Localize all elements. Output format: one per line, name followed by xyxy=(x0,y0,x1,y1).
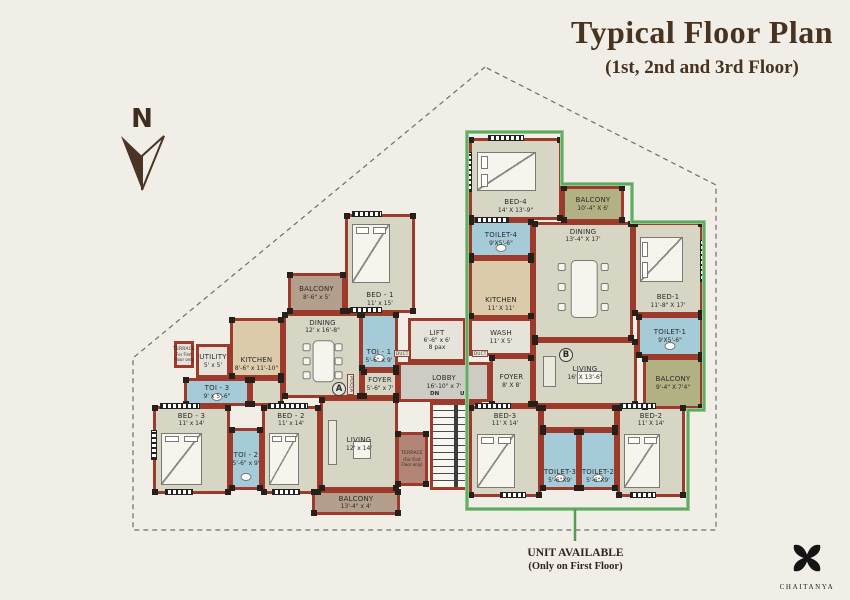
wall-pillar xyxy=(612,429,618,435)
north-letter: N xyxy=(110,106,174,132)
wall-pillar xyxy=(528,257,534,263)
wall-pillar xyxy=(468,313,474,319)
room-label-toilet-3-b: TOILET-35'-6"X9' xyxy=(544,468,576,484)
room-label-balcony-right-b: BALCONY9'-4" X 7'4" xyxy=(656,375,691,391)
wall-pillar xyxy=(528,313,534,319)
room-label-kitchen-a: KITCHEN8'-6" x 11'-10" xyxy=(235,356,278,372)
wall-pillar xyxy=(257,427,263,433)
room-kitchen-a: KITCHEN8'-6" x 11'-10" xyxy=(230,318,283,378)
wall-pillar xyxy=(468,405,474,411)
bed-icon xyxy=(161,433,202,485)
room-dining-b: DINING13'-4" X 17' xyxy=(533,222,633,340)
wall-pillar xyxy=(561,217,567,223)
wall-pillar xyxy=(680,405,686,411)
room-living-a: LIVING12' x 14' xyxy=(320,398,398,490)
toilet-fixture-icon xyxy=(241,473,252,481)
wall-pillar xyxy=(393,397,399,403)
stairs-up-label: UP xyxy=(460,391,469,397)
room-label-bed-3-a: BED - 311' x 14' xyxy=(178,412,205,428)
room-bed-1-b: BED-111'-8" X 17' xyxy=(633,222,703,315)
window-icon xyxy=(475,403,511,409)
window-icon xyxy=(350,307,382,313)
wall-pillar xyxy=(311,510,317,516)
room-label-wash-b: WASH11' X 5' xyxy=(490,329,513,345)
pooja-label: POOJA xyxy=(347,374,354,395)
page-subtitle: (1st, 2nd and 3rd Floor) xyxy=(560,57,844,79)
room-label-living-b: LIVING16' X 13'-6" xyxy=(567,365,602,381)
wall-pillar xyxy=(540,485,546,491)
wall-pillar xyxy=(468,492,474,498)
wall-pillar xyxy=(282,393,288,399)
window-icon xyxy=(620,403,656,409)
wall-pillar xyxy=(468,137,474,143)
chaitanya-flower-logo-icon xyxy=(787,538,827,578)
window-icon xyxy=(475,217,509,223)
unit-a-marker: A xyxy=(332,382,346,396)
wall-pillar xyxy=(528,401,534,407)
north-indicator: N xyxy=(110,106,174,198)
room-bed-3-b: BED-311' X 14' xyxy=(469,406,541,497)
wall-pillar xyxy=(632,221,638,227)
room-toilet-2-b: TOILET-25'-6"X9' xyxy=(579,430,617,490)
room-label-dining-a: DINING12' x 16'-8" xyxy=(305,319,340,335)
wall-pillar xyxy=(229,485,235,491)
wall-pillar xyxy=(261,405,267,411)
north-arrow-icon xyxy=(114,132,170,194)
wall-pillar xyxy=(532,339,538,345)
wall-pillar xyxy=(361,393,367,399)
room-balcony-top-b: BALCONY10'-4" X 6' xyxy=(562,186,624,222)
room-label-living-a: LIVING12' x 14' xyxy=(346,436,372,452)
wall-pillar xyxy=(468,219,474,225)
room-label-bed-1-b: BED-111'-8" X 17' xyxy=(650,293,685,309)
wall-pillar xyxy=(642,356,648,362)
room-lobby: LOBBY16'-10" x 7' xyxy=(398,362,490,402)
bed-icon xyxy=(352,224,389,284)
wall-pillar xyxy=(489,355,495,361)
wall-pillar xyxy=(261,489,267,495)
wall-pillar xyxy=(410,308,416,314)
wall-pillar xyxy=(395,431,401,437)
room-label-balcony-top-a: BALCONY8'-6" x 5' xyxy=(299,285,334,301)
wall-pillar xyxy=(698,356,704,362)
room-kitchen-b: KITCHEN11' X 11' xyxy=(469,258,533,318)
wall-pillar xyxy=(287,272,293,278)
window-icon xyxy=(700,240,706,282)
wall-pillar xyxy=(311,489,317,495)
wall-pillar xyxy=(616,492,622,498)
wall-pillar xyxy=(395,489,401,495)
sofa-icon xyxy=(543,356,556,387)
room-label-utility-a: UTILITY5' x 5' xyxy=(199,353,226,369)
wall-pillar xyxy=(619,185,625,191)
wall-pillar xyxy=(344,213,350,219)
room-label-balcony-top-b: BALCONY10'-4" X 6' xyxy=(576,196,611,212)
window-icon xyxy=(488,135,524,141)
room-label-lift: LIFT6'-6" x 6'8 pax xyxy=(423,329,450,352)
wall-pillar xyxy=(468,257,474,263)
legend-line-2: (Only on First Floor) xyxy=(488,561,663,572)
window-icon xyxy=(630,492,656,498)
wall-pillar xyxy=(229,373,235,379)
room-label-foyer-b: FOYER8' X 8' xyxy=(500,373,524,389)
room-label-toilet-1-b: TOILET-19'X5'-6" xyxy=(654,328,686,344)
wall-pillar xyxy=(578,429,584,435)
dining-table-icon xyxy=(302,340,343,380)
wall-pillar xyxy=(557,137,563,143)
bed-icon xyxy=(477,434,515,488)
wall-pillar xyxy=(636,314,642,320)
bed-icon xyxy=(624,434,660,488)
dining-table-icon xyxy=(557,260,610,316)
room-label-toi-2-a: TOI - 25'-6" x 9' xyxy=(232,451,259,467)
wall-pillar xyxy=(340,308,346,314)
wall-pillar xyxy=(680,492,686,498)
page-title: Typical Floor Plan xyxy=(560,16,844,50)
brand-block: CHAITANYA xyxy=(773,538,841,591)
room-label-bed-1-a: BED - 111' x 15' xyxy=(366,291,393,307)
room-terrace-small-a: TERRACEFor First Floor only xyxy=(174,341,194,368)
room-label-foyer-a: FOYER5'-6" x 7' xyxy=(366,376,393,392)
room-lift: LIFT6'-6" x 6'8 pax xyxy=(408,318,466,362)
wall-pillar xyxy=(578,485,584,491)
stairs-dn-label: DN xyxy=(430,391,439,397)
wall-pillar xyxy=(536,492,542,498)
room-bed-3-a: BED - 311' x 14' xyxy=(153,406,230,494)
room-foyer-b: FOYER8' X 8' xyxy=(490,356,533,406)
room-toilet-1-b: TOILET-19'X5'-6" xyxy=(637,315,703,357)
wall-pillar xyxy=(423,431,429,437)
room-toi-2-a: TOI - 25'-6" x 9' xyxy=(230,428,262,490)
wall-pillar xyxy=(612,485,618,491)
wall-pillar xyxy=(152,405,158,411)
duct-right-label: DUCT xyxy=(472,350,488,357)
room-label-toilet-4-b: TOILET-49'X5'-6" xyxy=(485,231,517,247)
wall-pillar xyxy=(540,405,546,411)
room-label-bed-3-b: BED-311' X 14' xyxy=(492,412,519,428)
room-toilet-4-b: TOILET-49'X5'-6" xyxy=(469,220,533,258)
wall-pillar xyxy=(393,312,399,318)
wall-pillar xyxy=(319,397,325,403)
wall-pillar xyxy=(393,369,399,375)
room-toilet-3-b: TOILET-35'-6"X9' xyxy=(541,430,579,490)
wall-pillar xyxy=(698,314,704,320)
unit-b-marker: B xyxy=(559,348,573,362)
bed-icon xyxy=(640,237,684,282)
wall-pillar xyxy=(619,217,625,223)
wall-pillar xyxy=(225,405,231,411)
wall-pillar xyxy=(540,429,546,435)
window-icon xyxy=(466,152,472,192)
wall-pillar xyxy=(152,489,158,495)
room-label-dining-b: DINING13'-4" X 17' xyxy=(565,228,600,244)
room-bed-2-b: BED-211' X 14' xyxy=(617,406,685,497)
room-label-toi-3-a: TOI - 39' x 5'-6" xyxy=(203,384,230,400)
wall-pillar xyxy=(340,272,346,278)
room-passage-b xyxy=(541,406,617,430)
wall-pillar xyxy=(423,481,429,487)
brand-name: CHAITANYA xyxy=(773,583,841,591)
wall-pillar xyxy=(249,401,255,407)
window-icon xyxy=(272,489,300,495)
room-label-lobby: LOBBY16'-10" x 7' xyxy=(427,374,462,390)
room-label-balcony-bottom-a: BALCONY13'-4" x 4' xyxy=(339,495,374,511)
room-bed-1-a: BED - 111' x 15' xyxy=(345,214,415,313)
wall-pillar xyxy=(229,427,235,433)
wall-pillar xyxy=(532,221,538,227)
room-label-bed-2-a: BED - 211' x 14' xyxy=(277,412,304,428)
room-label-terrace-a: TERRACE(For First Floor only) xyxy=(399,451,425,466)
room-terrace-a: TERRACE(For First Floor only) xyxy=(396,432,428,486)
room-balcony-bottom-a: BALCONY13'-4" x 4' xyxy=(312,490,400,515)
room-balcony-top-a: BALCONY8'-6" x 5' xyxy=(288,273,345,313)
sofa-icon xyxy=(328,420,337,465)
duct-left-label: DUCT xyxy=(394,350,410,357)
room-label-toilet-2-b: TOILET-25'-6"X9' xyxy=(582,468,614,484)
room-toi-1-a: TOI - 15'-6" x 9' xyxy=(360,313,398,370)
bed-icon xyxy=(269,433,299,485)
wall-pillar xyxy=(698,221,704,227)
window-icon xyxy=(500,492,526,498)
wall-pillar xyxy=(319,485,325,491)
wall-pillar xyxy=(395,481,401,487)
wall-pillar xyxy=(410,213,416,219)
room-bed-4-b: BED-414' X 13'-9" xyxy=(469,138,562,220)
legend-line-1: UNIT AVAILABLE xyxy=(488,547,663,559)
wall-pillar xyxy=(315,405,321,411)
bed-icon xyxy=(477,152,536,192)
wall-pillar xyxy=(278,317,284,323)
room-bed-2-a: BED - 211' x 14' xyxy=(262,406,320,494)
floor-plan: BED - 111' x 15'BALCONY8'-6" x 5'DINING1… xyxy=(0,0,850,600)
wall-pillar xyxy=(632,339,638,345)
window-icon xyxy=(160,403,200,409)
room-balcony-right-b: BALCONY9'-4" X 7'4" xyxy=(643,357,703,409)
floor-plan-page: BED - 111' x 15'BALCONY8'-6" x 5'DINING1… xyxy=(0,0,850,600)
wall-pillar xyxy=(528,355,534,361)
room-label-kitchen-b: KITCHEN11' X 11' xyxy=(485,296,517,312)
wall-pillar xyxy=(229,317,235,323)
room-label-bed-4-b: BED-414' X 13'-9" xyxy=(498,198,533,214)
room-label-bed-2-b: BED-211' X 14' xyxy=(638,412,665,428)
wall-pillar xyxy=(698,404,704,410)
window-icon xyxy=(352,211,382,217)
wall-pillar xyxy=(183,377,189,383)
wall-pillar xyxy=(278,377,284,383)
window-icon xyxy=(165,489,193,495)
room-utility-a: UTILITY5' x 5' xyxy=(196,344,230,378)
title-block: Typical Floor Plan (1st, 2nd and 3rd Flo… xyxy=(560,16,844,79)
wall-pillar xyxy=(561,185,567,191)
wall-pillar xyxy=(395,510,401,516)
window-icon xyxy=(268,403,308,409)
room-toi-3-a: TOI - 39' x 5'-6" xyxy=(184,378,250,406)
window-icon xyxy=(151,430,157,460)
room-label-terrace-small-a: TERRACEFor First Floor only xyxy=(173,347,195,362)
room-living-b: LIVING16' X 13'-6" xyxy=(533,340,637,406)
wall-pillar xyxy=(361,369,367,375)
unit-available-legend: UNIT AVAILABLE (Only on First Floor) xyxy=(488,547,663,572)
wall-pillar xyxy=(249,377,255,383)
room-label-toi-1-a: TOI - 15'-6" x 9' xyxy=(365,348,392,364)
